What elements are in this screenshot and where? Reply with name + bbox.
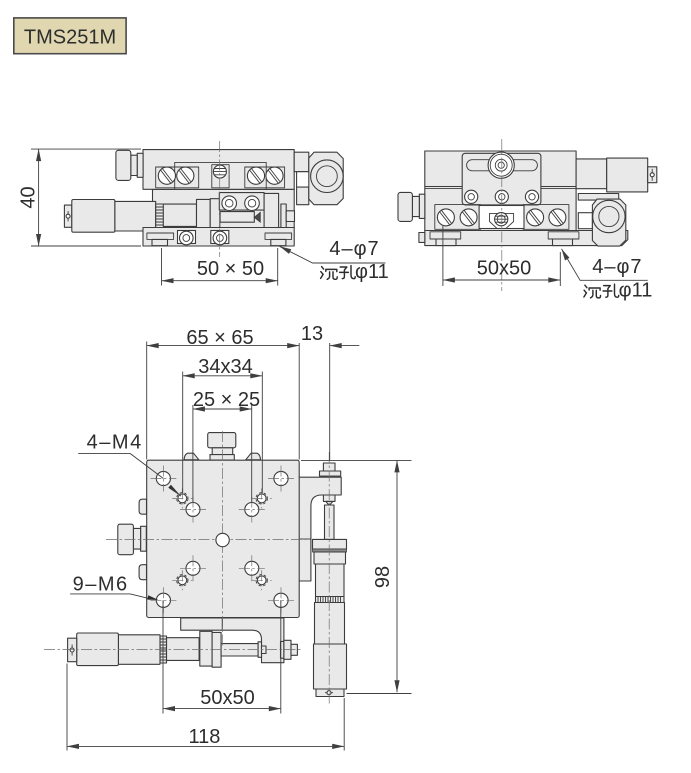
svg-text:4–φ7: 4–φ7 bbox=[329, 238, 379, 260]
svg-text:φ11: φ11 bbox=[619, 280, 653, 302]
svg-text:34x34: 34x34 bbox=[198, 356, 253, 378]
svg-text:13: 13 bbox=[301, 323, 323, 345]
svg-text:4–φ7: 4–φ7 bbox=[592, 256, 642, 278]
svg-text:50x50: 50x50 bbox=[477, 258, 532, 280]
svg-text:25 × 25: 25 × 25 bbox=[193, 389, 260, 411]
svg-text:65 × 65: 65 × 65 bbox=[186, 327, 253, 349]
svg-text:40: 40 bbox=[18, 186, 40, 208]
svg-text:118: 118 bbox=[189, 726, 221, 748]
svg-text:TMS251M: TMS251M bbox=[24, 27, 116, 49]
svg-text:φ11: φ11 bbox=[355, 261, 389, 283]
svg-text:4–M4: 4–M4 bbox=[87, 432, 143, 454]
svg-text:98: 98 bbox=[372, 566, 394, 588]
svg-text:9–M6: 9–M6 bbox=[73, 574, 129, 596]
svg-text:50 × 50: 50 × 50 bbox=[197, 258, 264, 280]
svg-text:50x50: 50x50 bbox=[200, 687, 255, 709]
